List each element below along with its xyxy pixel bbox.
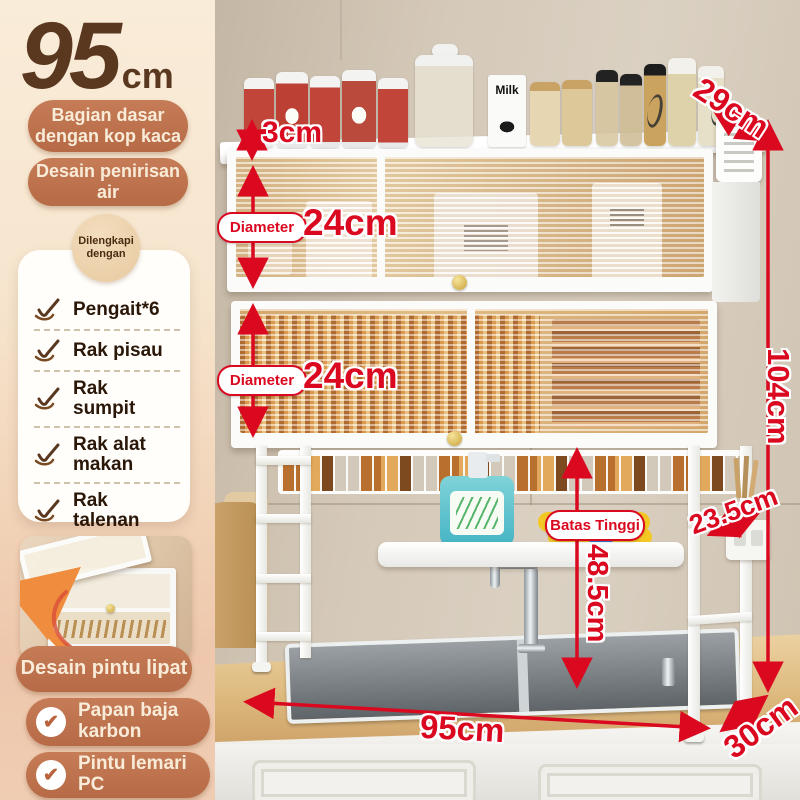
badge-folding-door: Desain pintu lipat xyxy=(16,646,192,692)
feature-item: Rak sumpit xyxy=(34,372,180,428)
feature-label: Pengait*6 xyxy=(73,300,160,320)
spice-bottle xyxy=(620,74,642,146)
container-silhouette xyxy=(434,193,538,277)
leg-rung xyxy=(256,632,311,641)
total-height-label: 104cm xyxy=(763,348,794,445)
badge-pc-door: ✔ Pintu lemari PC xyxy=(26,752,210,798)
rack-foot xyxy=(252,662,271,672)
height-limit-text: Batas Tinggi xyxy=(550,517,640,534)
leg-rung xyxy=(256,574,311,583)
card-title-text: Dilengkapi dengan xyxy=(72,235,140,261)
product-image: Milk xyxy=(0,0,800,800)
cabinet-side-panel xyxy=(712,182,760,302)
diameter-pill-top: Diameter xyxy=(217,212,307,243)
card-title-circle: Dilengkapi dengan xyxy=(72,214,140,282)
badge-drainage: Desain penirisan air xyxy=(28,158,188,206)
soap-pump xyxy=(662,658,675,686)
spice-jar xyxy=(378,78,408,148)
check-icon xyxy=(34,498,61,523)
diameter-bottom-value: 24cm xyxy=(303,357,398,394)
feature-label: Rak talenan xyxy=(73,491,169,531)
canister-silhouette xyxy=(592,183,662,277)
cabinet-door xyxy=(538,764,762,800)
cabinet-door xyxy=(252,760,476,800)
feature-label: Rak alat makan xyxy=(73,435,169,475)
top-clearance-label: 3cm xyxy=(262,118,322,148)
leg-rung xyxy=(256,456,311,465)
box-slot xyxy=(751,530,763,546)
features-card: Pengait*6 Rak pisau Rak sumpit xyxy=(18,250,190,522)
check-icon xyxy=(34,442,61,467)
height-limit-pill: Batas Tinggi xyxy=(545,510,645,541)
width-label: 95cm xyxy=(419,710,505,747)
lower-door-divider xyxy=(467,301,475,448)
badge-carbon-steel: ✔ Papan baja karbon xyxy=(26,698,210,746)
soap-pump-spout xyxy=(486,454,500,462)
upper-gold-knob xyxy=(452,275,467,290)
spice-jar xyxy=(342,70,376,148)
check-icon xyxy=(34,386,61,411)
glass-canister xyxy=(415,55,473,147)
tray-shelf xyxy=(378,542,684,567)
container-grid xyxy=(464,225,508,251)
vent-lines xyxy=(610,209,644,227)
milk-carton: Milk xyxy=(488,75,526,147)
spice-bottle xyxy=(596,70,618,146)
feature-item: Rak talenan xyxy=(34,484,180,538)
faucet-pipe xyxy=(524,566,538,650)
check-circle-icon: ✔ xyxy=(36,760,66,790)
diameter-top-value: 24cm xyxy=(303,204,398,241)
badge-carbon-steel-text: Papan baja karbon xyxy=(78,701,210,743)
box-slot xyxy=(734,530,746,546)
diameter-pill-bottom-text: Diameter xyxy=(230,372,294,389)
folding-door-inset xyxy=(20,536,192,660)
check-icon xyxy=(34,338,61,363)
leg-rung xyxy=(256,514,311,523)
feature-item: Rak pisau xyxy=(34,331,180,372)
diameter-pill-top-text: Diameter xyxy=(230,219,294,236)
badge-pc-door-text: Pintu lemari PC xyxy=(78,754,210,796)
feature-label: Rak sumpit xyxy=(73,379,169,419)
grain-jar xyxy=(562,80,592,146)
grain-jar xyxy=(530,82,560,146)
rack-foot xyxy=(684,732,704,742)
milk-label: Milk xyxy=(488,83,526,97)
badge-folding-door-text: Desain pintu lipat xyxy=(21,657,188,681)
headline-value: 95 xyxy=(20,2,118,111)
rack-leg xyxy=(300,446,311,658)
tile-grout-line xyxy=(340,0,342,60)
diameter-pill-bottom: Diameter xyxy=(217,365,307,396)
badge-glass-base: Bagian dasar dengan kop kaca xyxy=(28,100,188,152)
rack-leg xyxy=(688,446,700,736)
feature-item: Pengait*6 xyxy=(34,290,180,331)
copper-pans-silhouette xyxy=(552,319,700,427)
soap-pump-top xyxy=(468,452,488,478)
headline-unit: cm xyxy=(122,55,174,97)
dish-soap-bottle xyxy=(440,476,514,546)
headline-dimension: 95 cm xyxy=(20,2,174,111)
badge-glass-base-text: Bagian dasar dengan kop kaca xyxy=(28,105,188,147)
faucet-base xyxy=(517,644,545,653)
feature-label: Rak pisau xyxy=(73,341,163,361)
soap-label xyxy=(450,491,504,535)
marketing-panel: 95 cm Bagian dasar dengan kop kaca Desai… xyxy=(0,0,215,800)
check-circle-icon: ✔ xyxy=(36,707,66,737)
check-icon xyxy=(34,297,61,322)
fold-arrow xyxy=(20,536,192,660)
feature-item: Rak alat makan xyxy=(34,428,180,484)
cutting-board-wood xyxy=(212,502,260,648)
soap-label-art xyxy=(456,497,498,529)
clearance-height-label: 48.5cm xyxy=(582,544,611,642)
badge-drainage-text: Desain penirisan air xyxy=(28,161,188,203)
lower-gold-knob xyxy=(447,431,462,446)
